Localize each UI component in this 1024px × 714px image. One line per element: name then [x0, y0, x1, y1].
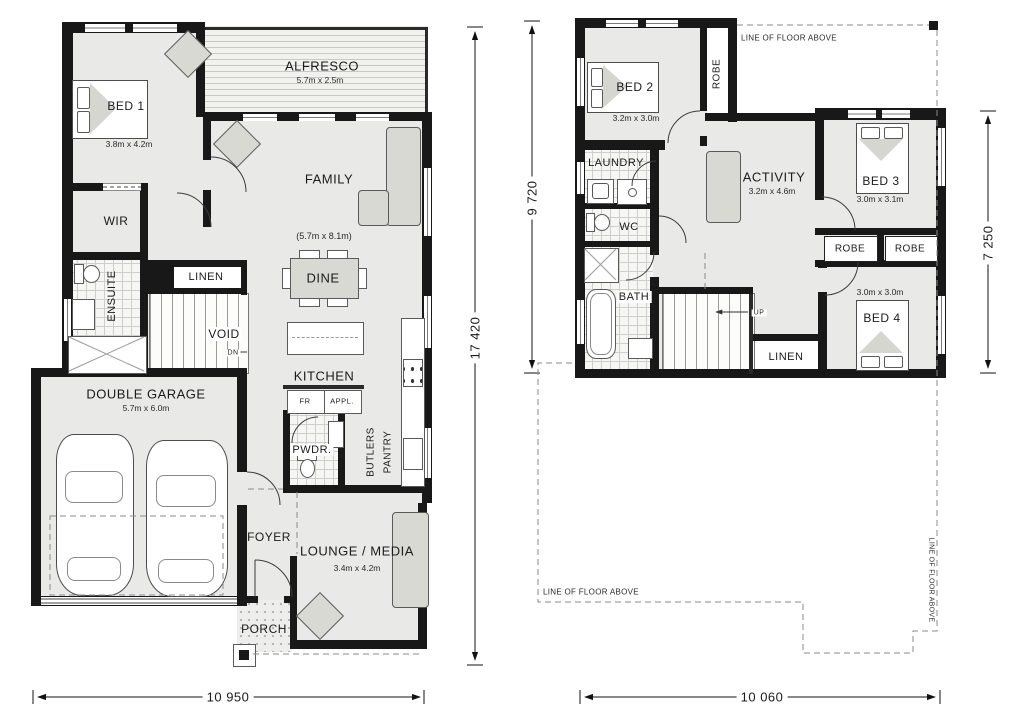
room-label-bed3: BED 3	[860, 174, 901, 188]
dim-upper-width: 10 060	[737, 690, 788, 705]
label-fridge: FR	[300, 397, 311, 406]
dim-ground-width: 10 950	[203, 690, 254, 705]
dimension-lines	[33, 21, 996, 704]
room-label-wc: WC	[619, 221, 638, 233]
room-label-butlers-2: PANTRY	[383, 431, 394, 474]
room-size-bed4: 3.0m x 3.0m	[857, 287, 904, 297]
room-label-porch: PORCH	[241, 622, 287, 636]
annotation-floor-above-right: LINE OF FLOOR ABOVE	[928, 538, 935, 623]
stair-arrows	[228, 312, 748, 352]
room-label-lounge: LOUNGE / MEDIA	[300, 544, 414, 559]
plan-linework	[0, 0, 1024, 714]
room-label-linen-u: LINEN	[769, 351, 804, 363]
garage-door-lines	[41, 599, 237, 603]
room-label-dine: DINE	[306, 271, 339, 286]
stair-label-up: UP	[752, 310, 767, 317]
room-label-activity: ACTIVITY	[743, 170, 806, 185]
dim-upper-height-left: 9 720	[525, 176, 540, 219]
dim-upper-height-right: 7 250	[981, 221, 996, 264]
label-appliance: APPL.	[330, 397, 354, 406]
room-label-robe-left: ROBE	[835, 244, 865, 255]
room-size-alfresco: 5.7m x 2.5m	[297, 75, 344, 85]
annotation-floor-above-left: LINE OF FLOOR ABOVE	[543, 588, 639, 597]
room-label-laundry: LAUNDRY	[588, 157, 644, 169]
room-size-activity: 3.2m x 4.6m	[749, 186, 796, 196]
room-size-garage: 5.7m x 6.0m	[123, 403, 170, 413]
floor-plan-canvas: BED 1 3.8m x 4.2m ALFRESCO 5.7m x 2.5m F…	[0, 0, 1024, 714]
room-label-family: FAMILY	[305, 172, 353, 187]
annotation-floor-above-top: LINE OF FLOOR ABOVE	[741, 34, 837, 43]
shower-x	[69, 249, 616, 371]
room-label-robe-bed2: ROBE	[712, 59, 723, 89]
room-label-bath: BATH	[617, 291, 652, 303]
room-label-garage: DOUBLE GARAGE	[86, 387, 205, 402]
room-label-pwdr: PWDR.	[290, 444, 333, 456]
room-label-foyer: FOYER	[247, 530, 291, 544]
room-label-butlers-1: BUTLERS	[366, 427, 377, 477]
dim-ground-height: 17 420	[468, 313, 483, 364]
room-size-bed1: 3.8m x 4.2m	[106, 139, 153, 149]
room-label-alfresco: ALFRESCO	[285, 59, 359, 74]
stair-label-dn: DN	[225, 350, 240, 357]
room-label-linen-g: LINEN	[189, 271, 224, 283]
room-label-wir: WIR	[104, 214, 129, 228]
room-label-bed1: BED 1	[107, 99, 144, 113]
room-size-bed3: 3.0m x 3.1m	[857, 194, 904, 204]
room-label-void: VOID	[206, 327, 241, 341]
room-size-lounge: 3.4m x 4.2m	[334, 563, 381, 573]
room-label-bed2: BED 2	[616, 80, 653, 94]
room-label-robe-right: ROBE	[895, 244, 925, 255]
line-of-floor-above-dashes	[50, 25, 937, 654]
room-label-ensuite: ENSUITE	[106, 270, 118, 321]
room-label-kitchen: KITCHEN	[294, 369, 355, 384]
room-label-bed4: BED 4	[861, 311, 902, 325]
room-size-bed2: 3.2m x 3.0m	[613, 113, 660, 123]
room-size-family: (5.7m x 8.1m)	[296, 231, 352, 241]
